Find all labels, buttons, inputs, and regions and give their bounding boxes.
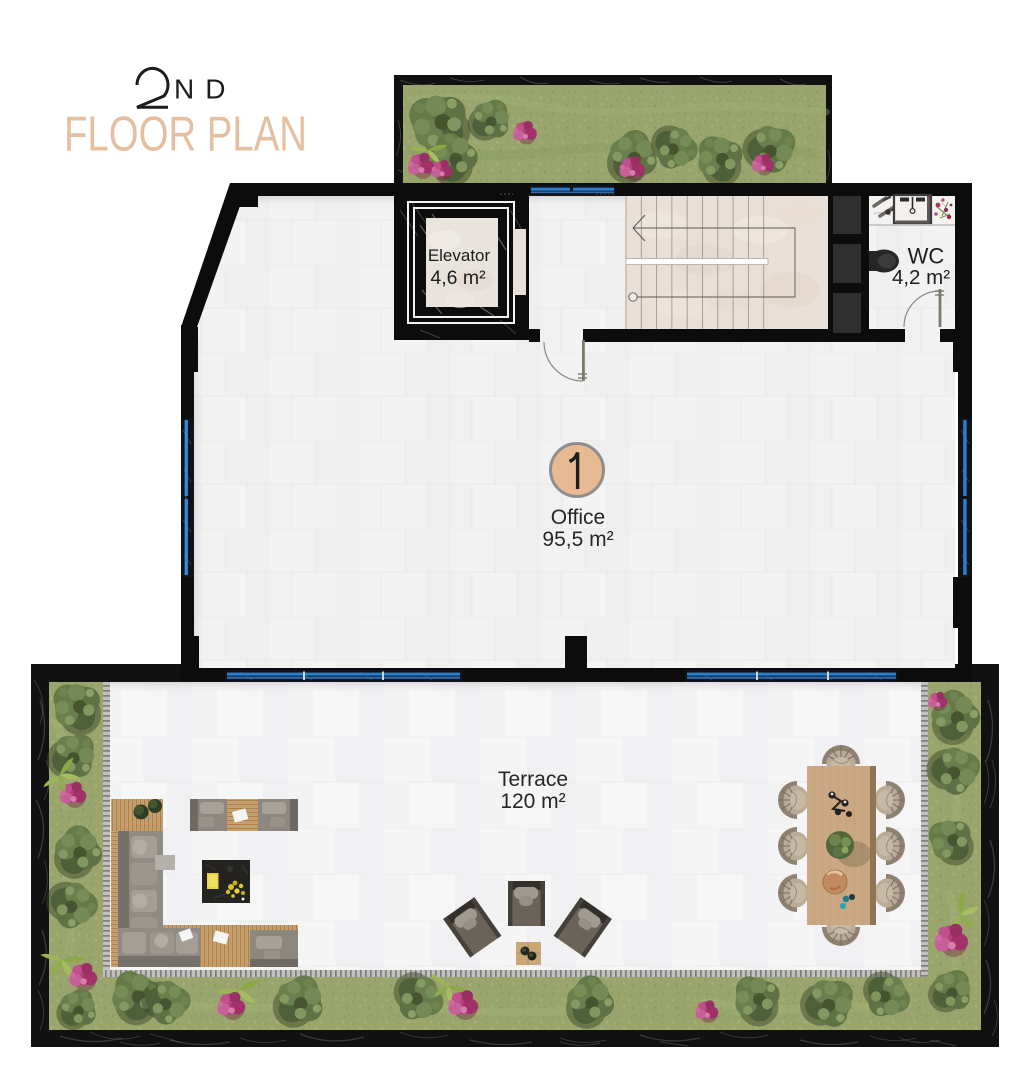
svg-text:FLOOR PLAN: FLOOR PLAN [64,108,307,162]
svg-text:4,2 m²: 4,2 m² [892,266,950,289]
svg-text:ND: ND [174,74,236,105]
svg-text:Office: Office [551,506,605,529]
svg-text:WC: WC [908,244,945,269]
svg-text:120 m²: 120 m² [500,790,565,813]
svg-text:95,5 m²: 95,5 m² [542,528,613,551]
svg-text:Terrace: Terrace [498,768,568,791]
svg-text:Elevator: Elevator [428,246,491,265]
svg-text:4,6 m²: 4,6 m² [430,267,486,289]
